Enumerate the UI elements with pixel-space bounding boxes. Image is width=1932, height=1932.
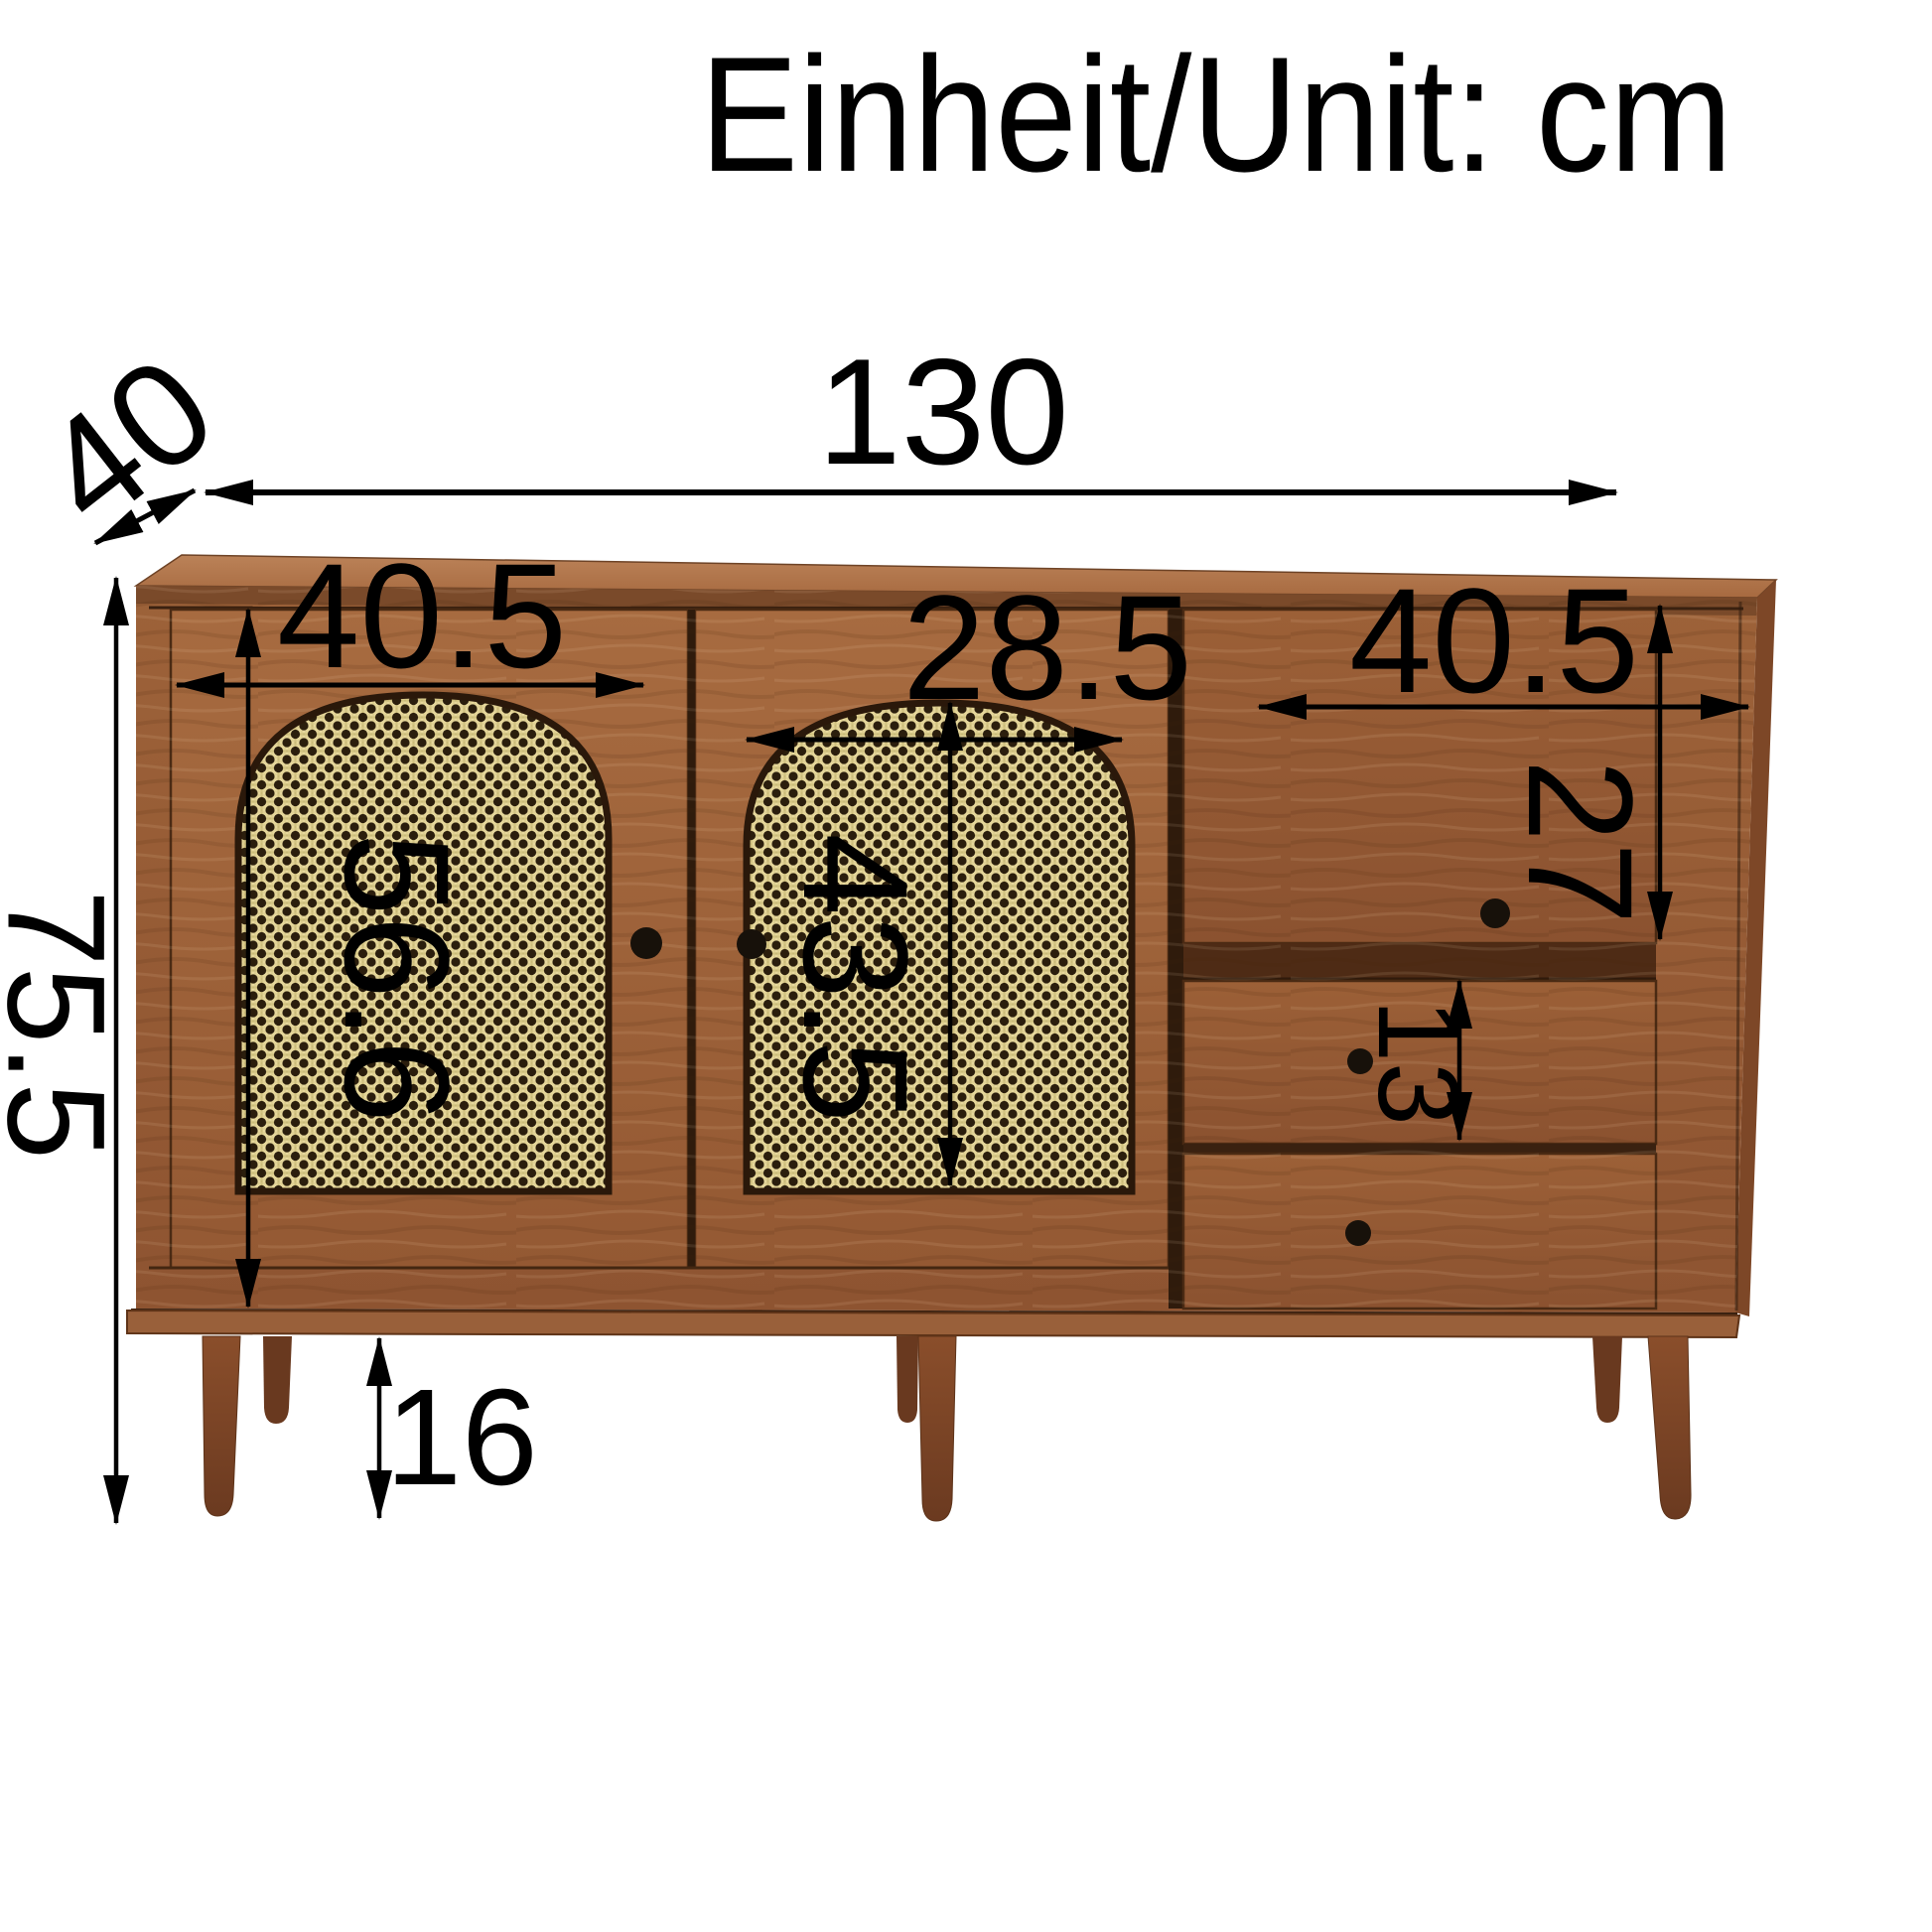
diagram-canvas: 130 40 75.5 40.5 56.6 28.5 43.5 [0,0,1932,1932]
sideboard-dimension-diagram: 130 40 75.5 40.5 56.6 28.5 43.5 [0,0,1932,1932]
dimension-label-overall-width: 130 [817,328,1069,496]
dim-depth: 40 [11,324,244,557]
leg-back-right [1592,1336,1622,1423]
dimension-label-top-drawer-height: 27 [1497,759,1664,925]
dimension-label-middle-door-panel-height: 43.5 [772,833,939,1123]
bottom-drawer-knob [1345,1220,1371,1246]
dim-overall-width: 130 [206,328,1616,496]
leg-back-middle [897,1336,918,1423]
dimension-label-drawer-section-width: 40.5 [1349,557,1639,724]
middle-door-knob [737,929,766,959]
unit-title: Einheit/Unit: cm [700,23,1732,206]
leg-front-left [203,1336,240,1516]
dimension-label-depth: 40 [11,324,244,557]
dim-leg-height: 16 [379,1338,538,1518]
leg-front-middle [918,1336,956,1521]
base-plinth [127,1311,1739,1337]
dimension-label-leg-height: 16 [385,1361,538,1514]
dimension-label-overall-height: 75.5 [0,890,135,1160]
dimension-label-left-door-height: 56.6 [314,833,481,1123]
dimension-label-left-door-width: 40.5 [277,532,567,699]
dimension-label-middle-drawer-height: 13 [1354,999,1481,1126]
dimension-label-middle-door-panel-width: 28.5 [902,564,1192,731]
leg-front-right [1648,1336,1691,1519]
dim-overall-height: 75.5 [0,578,135,1523]
leg-back-left [263,1336,292,1424]
dim-middle-drawer-height: 13 [1354,981,1481,1140]
left-door-knob [630,927,662,959]
